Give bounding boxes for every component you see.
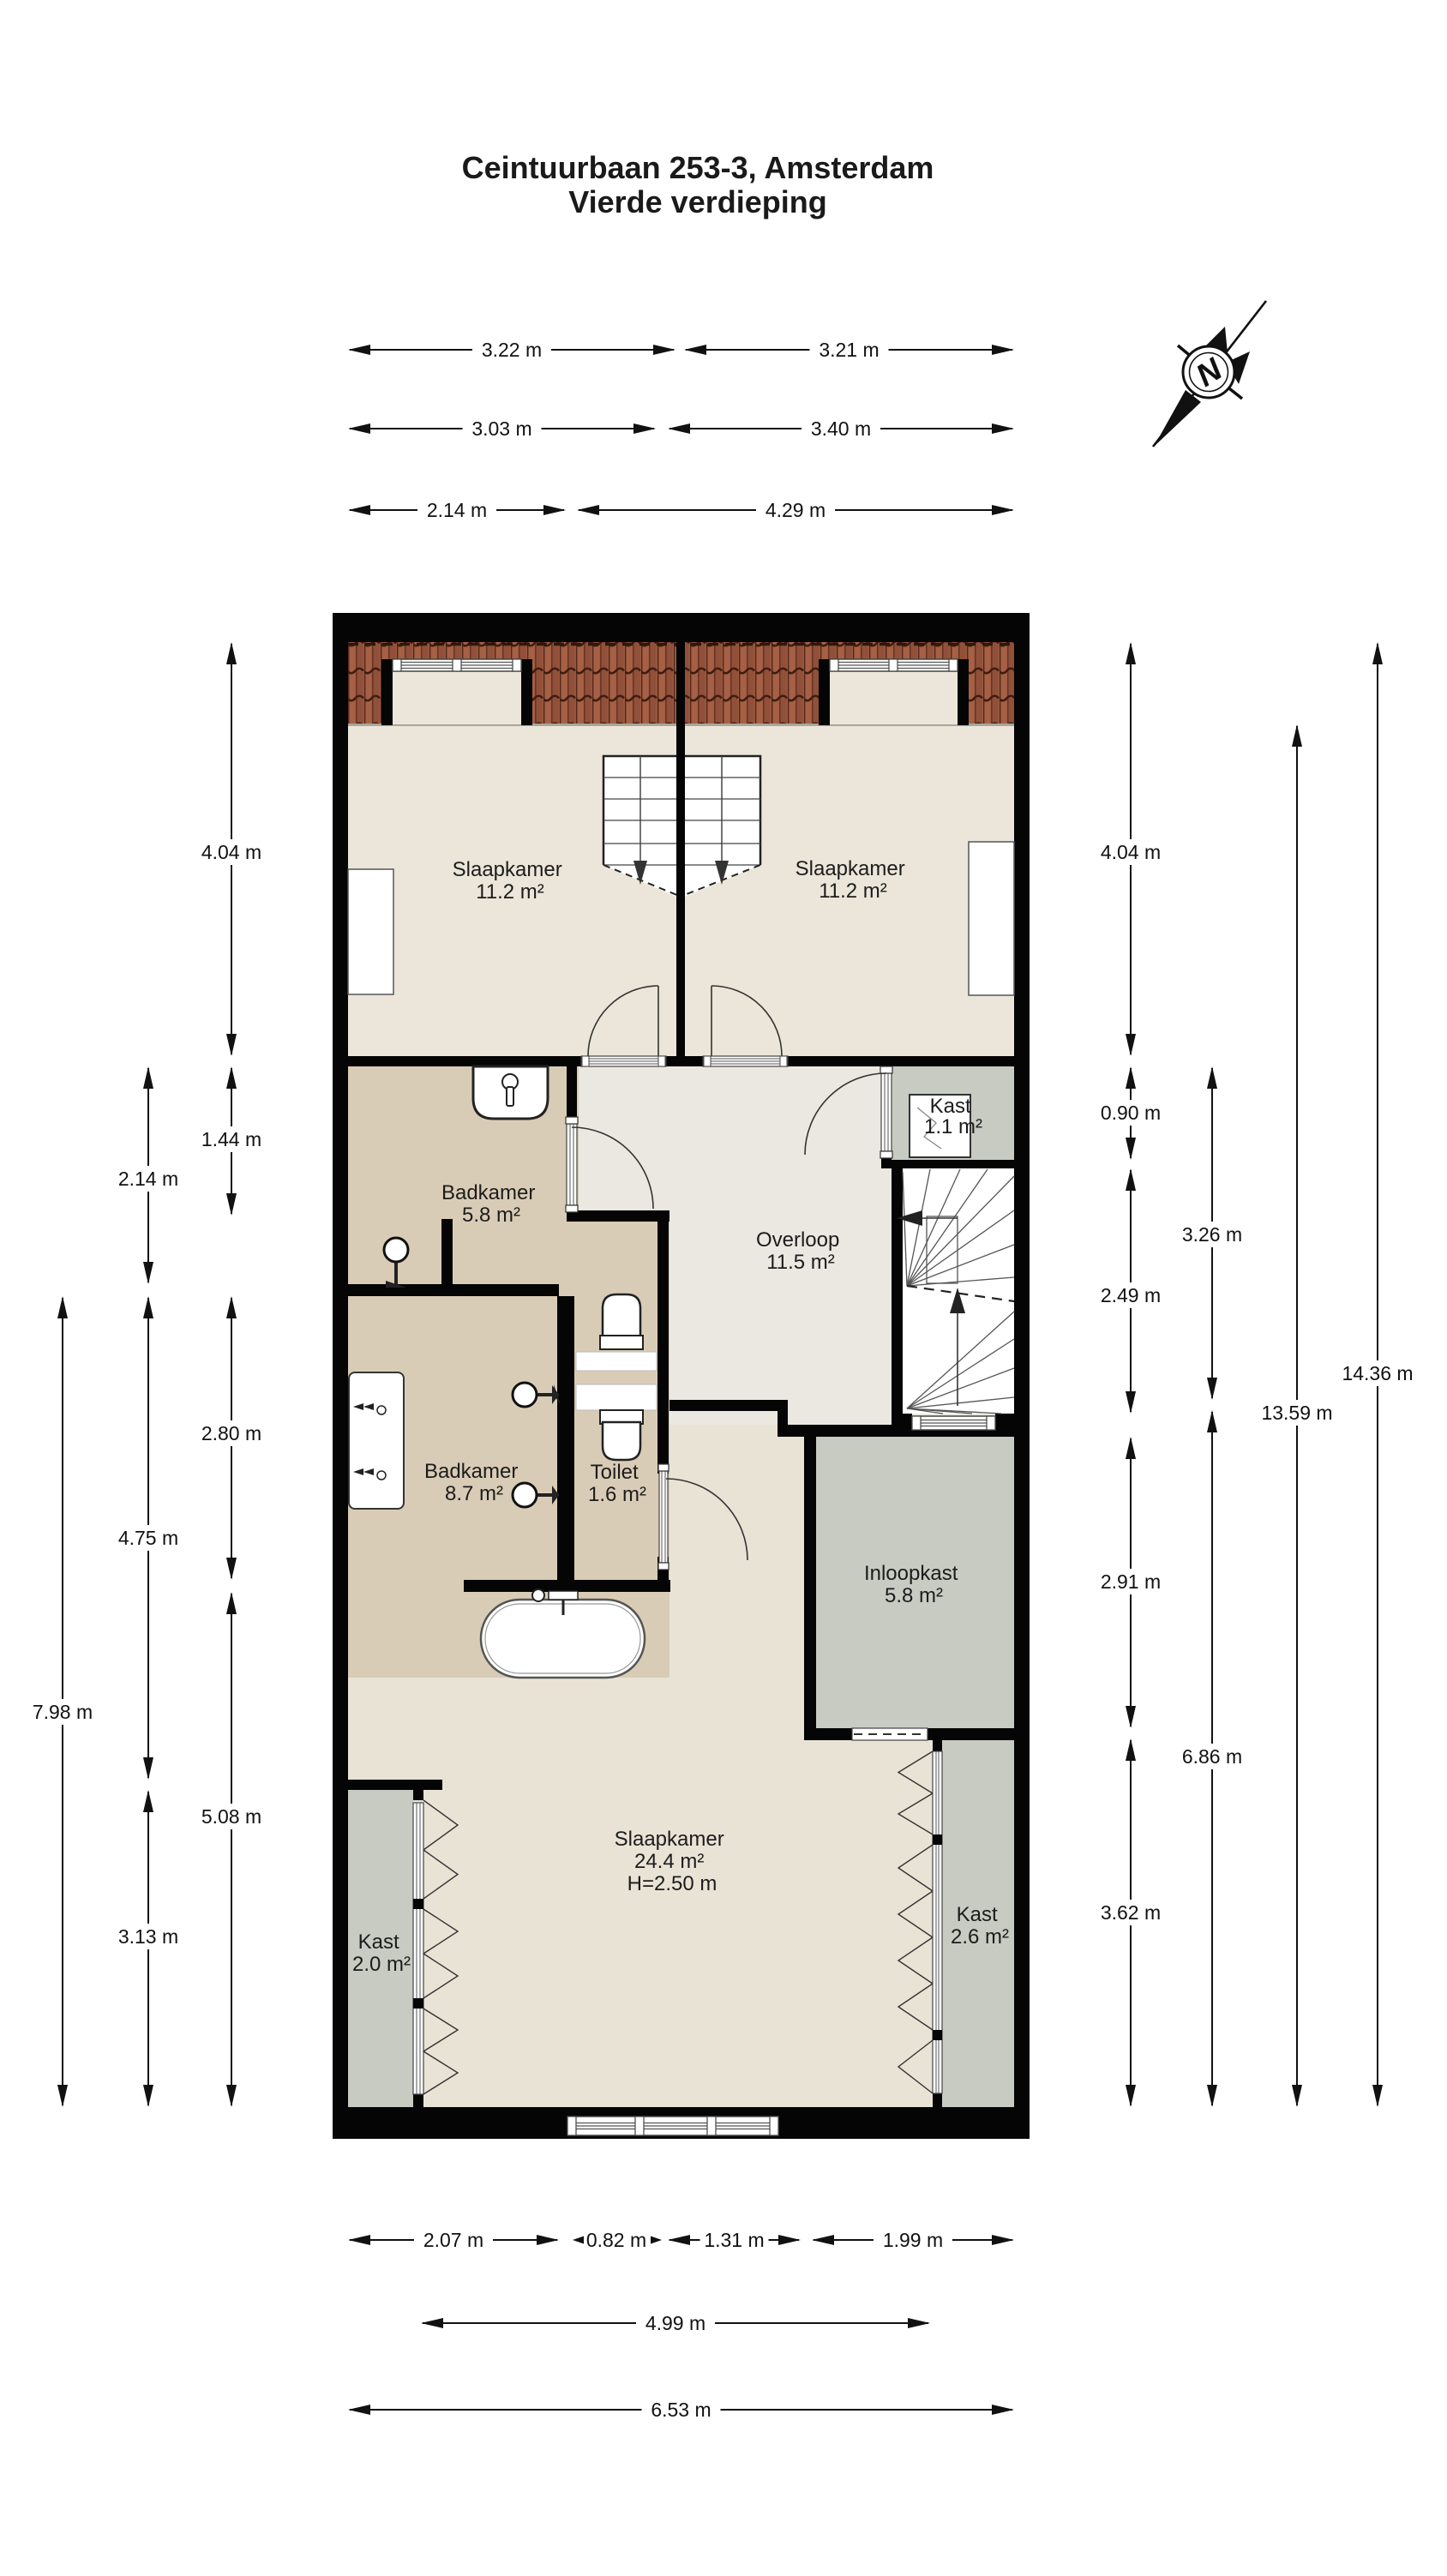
svg-text:2.91 m: 2.91 m [1101, 1570, 1161, 1593]
svg-text:3.21 m: 3.21 m [819, 339, 879, 361]
svg-text:3.13 m: 3.13 m [118, 1925, 178, 1948]
svg-text:Vierde verdieping: Vierde verdieping [568, 184, 826, 219]
svg-text:7.98 m: 7.98 m [33, 1701, 93, 1723]
svg-text:Kast 2.6 m²: Kast 2.6 m² [951, 1903, 1009, 1949]
svg-text:4.04 m: 4.04 m [1101, 841, 1161, 863]
svg-text:0.90 m: 0.90 m [1101, 1102, 1161, 1124]
svg-text:Kast 1.1 m²: Kast 1.1 m² [924, 1095, 982, 1138]
svg-text:14.36 m: 14.36 m [1342, 1362, 1413, 1384]
svg-text:0.82 m: 0.82 m [586, 2229, 646, 2251]
svg-text:3.40 m: 3.40 m [811, 417, 871, 440]
svg-text:4.04 m: 4.04 m [201, 841, 261, 863]
svg-text:4.75 m: 4.75 m [118, 1527, 178, 1549]
svg-text:Kast 2.0 m²: Kast 2.0 m² [352, 1930, 411, 1976]
svg-text:6.86 m: 6.86 m [1182, 1745, 1242, 1768]
svg-text:2.14 m: 2.14 m [427, 499, 487, 521]
svg-text:2.80 m: 2.80 m [201, 1422, 261, 1444]
svg-text:4.99 m: 4.99 m [645, 2312, 705, 2334]
svg-text:Ceintuurbaan 253-3, Amsterdam: Ceintuurbaan 253-3, Amsterdam [462, 150, 934, 185]
svg-text:1.99 m: 1.99 m [883, 2229, 943, 2251]
svg-text:1.44 m: 1.44 m [201, 1128, 261, 1150]
svg-text:1.31 m: 1.31 m [704, 2229, 764, 2251]
svg-text:5.08 m: 5.08 m [201, 1805, 261, 1828]
svg-text:2.14 m: 2.14 m [118, 1168, 178, 1190]
svg-text:3.26 m: 3.26 m [1182, 1223, 1242, 1246]
svg-text:Overloop 11.5 m²: Overloop 11.5 m² [756, 1228, 845, 1274]
svg-text:13.59 m: 13.59 m [1261, 1402, 1332, 1424]
svg-text:2.07 m: 2.07 m [423, 2229, 483, 2251]
svg-text:6.53 m: 6.53 m [651, 2399, 711, 2421]
svg-text:2.49 m: 2.49 m [1101, 1284, 1161, 1306]
svg-text:4.29 m: 4.29 m [766, 499, 826, 521]
svg-text:Toilet 1.6 m²: Toilet 1.6 m² [588, 1461, 646, 1506]
svg-text:3.03 m: 3.03 m [471, 417, 531, 440]
svg-text:3.22 m: 3.22 m [482, 339, 542, 361]
svg-text:3.62 m: 3.62 m [1101, 1901, 1161, 1924]
